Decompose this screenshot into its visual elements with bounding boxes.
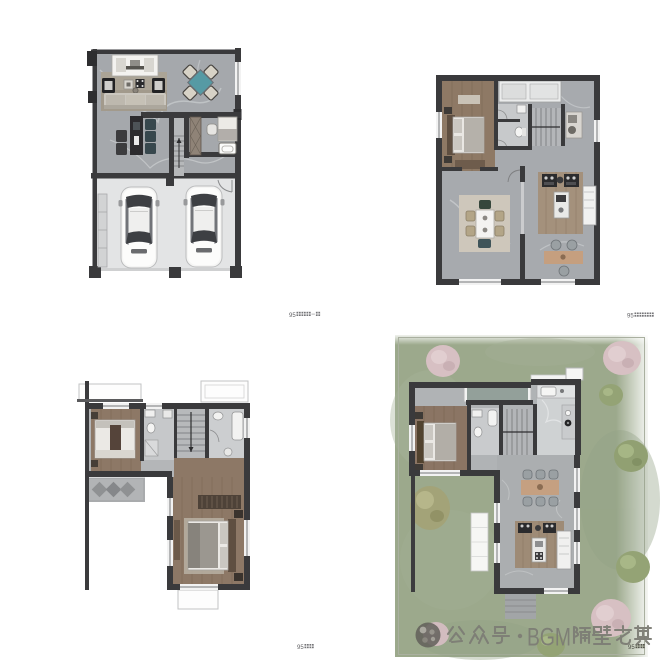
svg-text:95: 95: [627, 314, 634, 320]
svg-text:95: 95: [289, 313, 296, 319]
svg-text:95: 95: [297, 645, 304, 651]
svg-text:BGM: BGM: [527, 624, 571, 652]
svg-text:95: 95: [628, 645, 635, 651]
